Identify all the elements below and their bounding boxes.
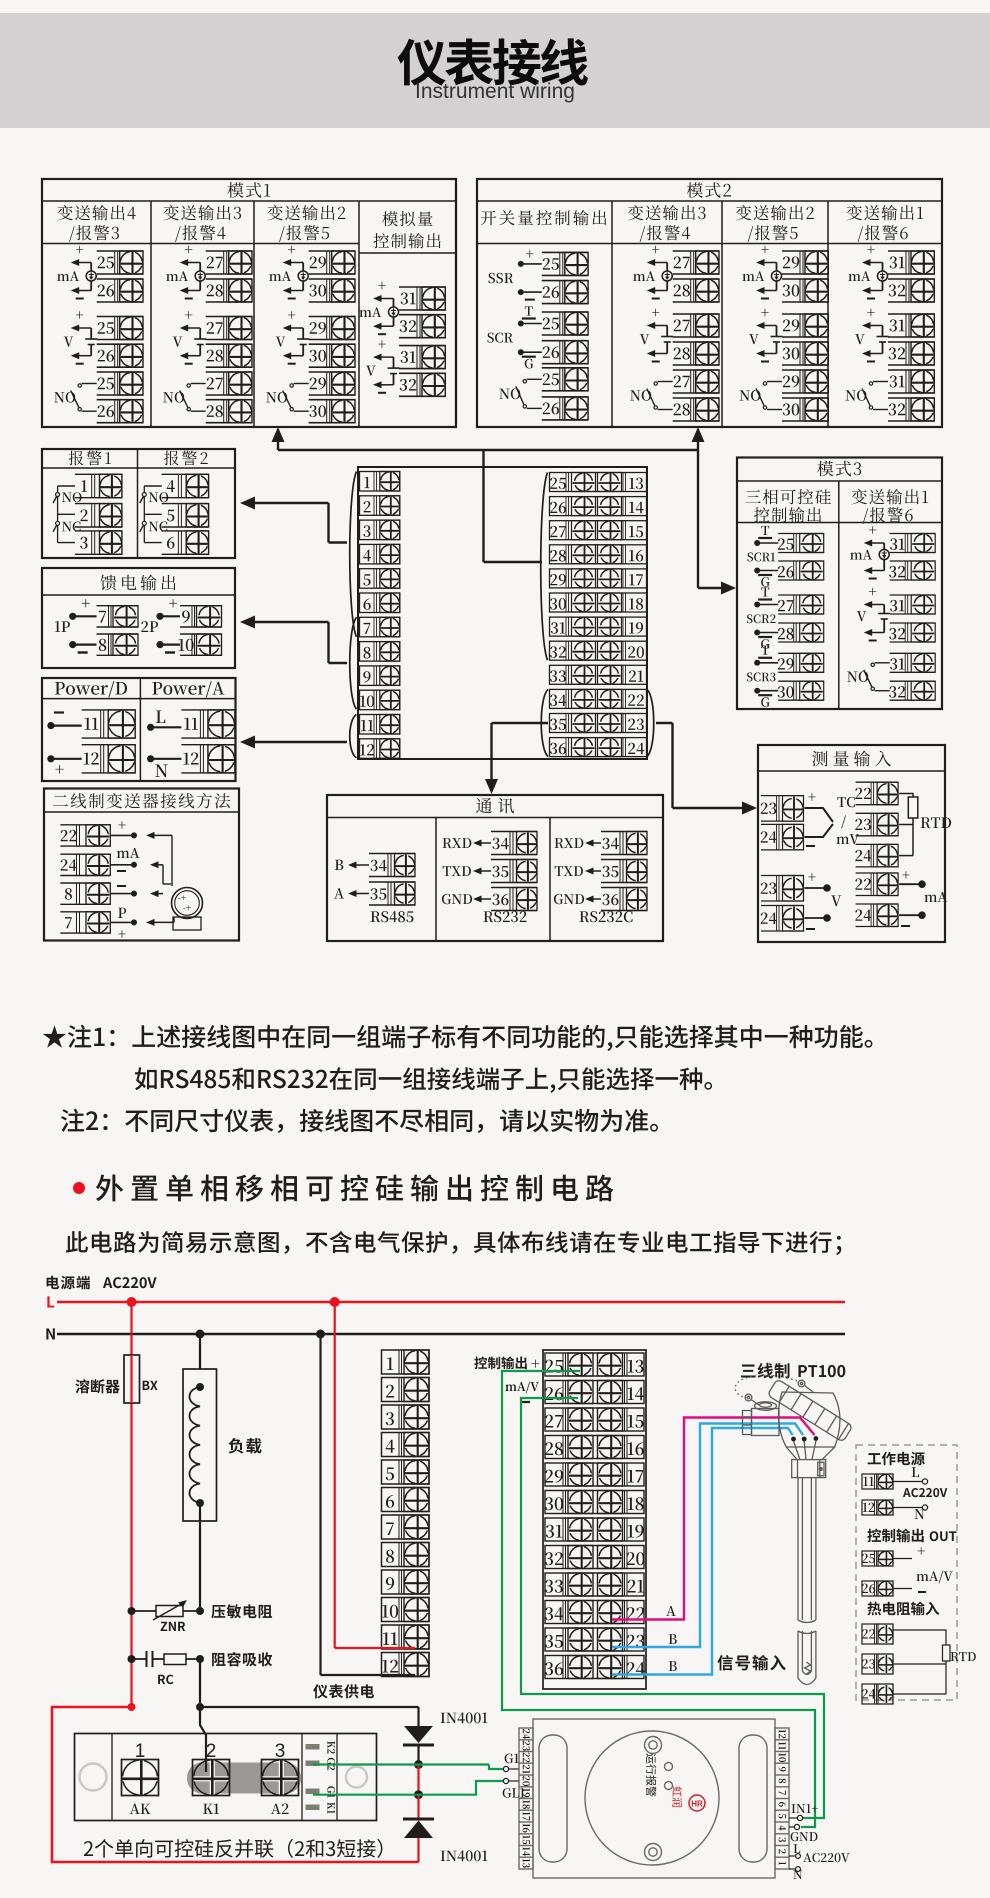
svg-text:Instrument wiring: Instrument wiring [415, 80, 575, 103]
svg-text:HR: HR [691, 1800, 703, 1809]
